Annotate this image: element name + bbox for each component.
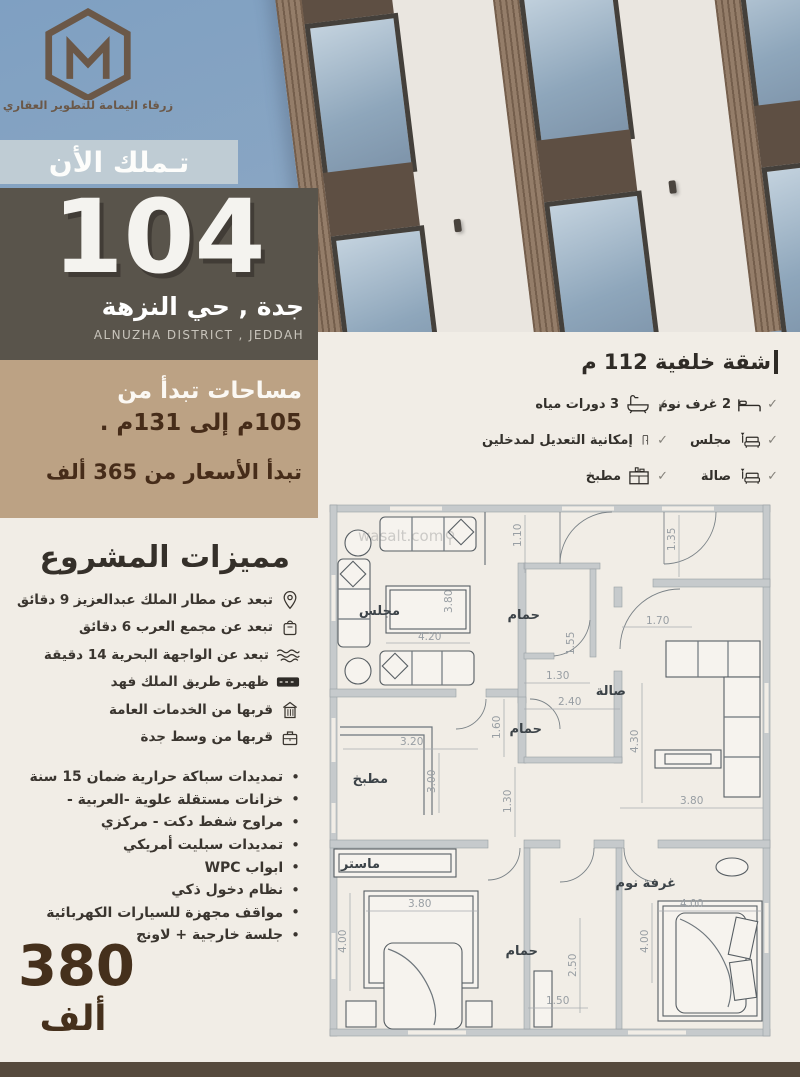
road-icon: [276, 674, 300, 690]
feature-label: تبعد عن مطار الملك عبدالعزيز 9 دقائق: [17, 592, 273, 608]
bullet-label: خزانات مستقلة علوية -العربية -: [67, 792, 283, 808]
bullet-dot: •: [291, 770, 300, 785]
feature-item: قربها من وسط جدة: [4, 724, 300, 752]
dim-value: 3.80: [408, 898, 431, 910]
feature-label: ظهيرة طريق الملك فهد: [111, 674, 269, 690]
areas-line2: 105م إلى 131م .: [100, 410, 302, 436]
check-icon: ✓: [657, 469, 668, 484]
bullet-item: •مراوح شفط دكت - مركزي: [4, 811, 300, 834]
bullet-label: نظام دخول ذكي: [171, 882, 283, 898]
price-unit: ألف: [18, 999, 128, 1039]
dim-value: 3.80: [680, 795, 703, 807]
location-arabic: جدة , حي النزهة: [102, 292, 304, 321]
bullet-item: •نظام دخول ذكي: [4, 879, 300, 902]
check-icon: ✓: [657, 397, 668, 412]
floor-plan: wasalt.com مجلس حمام صالة حمام مطبخ ماست…: [328, 503, 772, 1047]
spec-label: إمكانية التعديل لمدخلين: [482, 433, 633, 448]
building-facade: [268, 0, 800, 332]
waves-icon: [276, 646, 300, 664]
bullet-dot: •: [291, 905, 300, 920]
bullet-label: جلسة خارجية + لاونج: [136, 927, 283, 943]
bullet-item: •مواقف مجهزة للسيارات الكهربائية: [4, 902, 300, 925]
spec-item: ✓ مجلس: [658, 422, 778, 458]
dim-value: 1.30: [502, 790, 514, 813]
bullet-item: •تمديدات سبليت أمريكي: [4, 834, 300, 857]
unit-specs-title-text: شقة خلفية 112 م: [581, 350, 771, 374]
spec-label: 2 غرف نوم: [658, 397, 731, 412]
bullet-label: مواقف مجهزة للسيارات الكهربائية: [46, 905, 283, 921]
dim-value: 3.20: [400, 736, 423, 748]
spec-item: ✓ مطبخ: [482, 458, 668, 494]
feature-label: تبعد عن مجمع العرب 6 دقائق: [79, 619, 273, 635]
project-box: 104 جدة , حي النزهة ALNUZHA DISTRICT , J…: [0, 188, 318, 360]
kitchen-icon: [627, 466, 651, 486]
dim-value: 4.00: [337, 930, 349, 953]
specs-right-column: ✓ 2 غرف نوم ✓ مجلس ✓: [658, 386, 778, 494]
project-number: 104: [0, 184, 318, 291]
feature-item: تبعد عن مجمع العرب 6 دقائق: [4, 614, 300, 642]
own-now-text: تـملك الأن: [49, 146, 189, 179]
dim-value: 1.50: [546, 995, 569, 1007]
room-label-bath-mid: حمام: [510, 722, 543, 737]
bullet-label: تمديدات سباكة حرارية ضمان 15 سنة: [29, 769, 283, 785]
bullet-label: تمديدات سبليت أمريكي: [123, 837, 283, 853]
spec-label: مجلس: [690, 433, 731, 448]
bathtub-icon: [625, 394, 651, 414]
footer-bar: [0, 1062, 800, 1077]
mall-icon: [280, 616, 300, 638]
dim-value: 1.35: [666, 528, 678, 551]
areas-price-box: مساحات تبدأ من 105م إلى 131م . تبدأ الأس…: [0, 360, 318, 518]
room-label-master: ماستر: [340, 857, 380, 872]
features-title: مميزات المشروع: [0, 540, 296, 575]
dim-value: 4.30: [629, 730, 641, 753]
spec-label: صالة: [701, 469, 731, 484]
room-label-bedroom: غرفة نوم: [616, 876, 676, 891]
bullet-dot: •: [291, 792, 300, 807]
bullet-dot: •: [291, 883, 300, 898]
feature-label: قربها من الخدمات العامة: [109, 702, 273, 718]
location-pin-icon: [280, 589, 300, 611]
price-number: 380: [18, 938, 128, 997]
real-estate-flyer: زرقاء اليمامة للتطوير العقاري تـملك الأن…: [0, 0, 800, 1077]
feature-item: قربها من الخدمات العامة: [4, 696, 300, 724]
bed-icon: [737, 395, 761, 413]
dim-value: 1.30: [546, 670, 569, 682]
sofa-icon: [737, 466, 761, 486]
company-name: زرقاء اليمامة للتطوير العقاري: [2, 98, 174, 112]
features-list: تبعد عن مطار الملك عبدالعزيز 9 دقائق تبع…: [4, 586, 300, 751]
bullet-dot: •: [291, 928, 300, 943]
dim-value: 2.50: [567, 954, 579, 977]
spec-item: ✓ 3 دورات مياه: [482, 386, 668, 422]
dim-value: 1.60: [491, 716, 503, 739]
feature-item: تبعد عن الواجهة البحرية 14 دقيقة: [4, 641, 300, 669]
spec-item: ✓ إمكانية التعديل لمدخلين: [482, 422, 668, 458]
location-english: ALNUZHA DISTRICT , JEDDAH: [94, 328, 304, 342]
floor-plan-drawing: wasalt.com مجلس حمام صالة حمام مطبخ ماست…: [328, 503, 772, 1043]
dim-value: 4.20: [418, 631, 441, 643]
areas-line1: مساحات تبدأ من: [117, 378, 302, 404]
bullet-item: •تمديدات سباكة حرارية ضمان 15 سنة: [4, 766, 300, 789]
building-icon: [280, 699, 300, 721]
dim-value: 1.70: [646, 615, 669, 627]
bullet-dot: •: [291, 815, 300, 830]
feature-label: تبعد عن الواجهة البحرية 14 دقيقة: [44, 647, 269, 663]
dim-value: 2.40: [558, 696, 581, 708]
door-icon: [639, 429, 651, 451]
dim-value: 4.00: [680, 898, 703, 910]
check-icon: ✓: [657, 433, 668, 448]
features-bullet-list: •تمديدات سباكة حرارية ضمان 15 سنة •خزانا…: [4, 766, 300, 947]
feature-item: ظهيرة طريق الملك فهد: [4, 669, 300, 697]
dim-value: 1.55: [565, 632, 577, 655]
room-label-majlis: مجلس: [359, 604, 400, 619]
check-icon: ✓: [767, 433, 778, 448]
room-label-bath-top: حمام: [508, 608, 541, 623]
feature-item: تبعد عن مطار الملك عبدالعزيز 9 دقائق: [4, 586, 300, 614]
spec-item: ✓ صالة: [658, 458, 778, 494]
dim-value: 4.00: [639, 930, 651, 953]
bullet-dot: •: [291, 838, 300, 853]
company-logo: [40, 8, 136, 100]
check-icon: ✓: [767, 469, 778, 484]
bullet-item: •خزانات مستقلة علوية -العربية -: [4, 789, 300, 812]
bullet-label: مراوح شفط دكت - مركزي: [101, 814, 283, 830]
bullet-dot: •: [291, 860, 300, 875]
bullet-label: ابواب WPC: [205, 860, 284, 876]
unit-specs-title: شقة خلفية 112 م: [581, 350, 778, 374]
specs-left-column: ✓ 3 دورات مياه ✓ إمكانية التعديل لمدخلين…: [482, 386, 668, 494]
price-badge: 380 ألف: [18, 938, 128, 1039]
room-label-bath-bottom: حمام: [506, 944, 539, 959]
feature-label: قربها من وسط جدة: [140, 729, 273, 745]
room-label-hall: صالة: [596, 684, 626, 699]
title-bar: [774, 350, 778, 374]
spec-item: ✓ 2 غرف نوم: [658, 386, 778, 422]
dim-value: 3.00: [426, 770, 438, 793]
sofa-icon: [737, 430, 761, 450]
spec-label: مطبخ: [586, 469, 621, 484]
room-label-kitchen: مطبخ: [353, 772, 388, 787]
watermark: wasalt.com: [358, 527, 443, 545]
hexagon-m-logo-icon: [40, 8, 136, 100]
city-icon: [280, 726, 300, 748]
bullet-item: •ابواب WPC: [4, 856, 300, 879]
dim-value: 1.10: [512, 524, 524, 547]
check-icon: ✓: [767, 397, 778, 412]
starting-price: تبدأ الأسعار من 365 ألف: [46, 460, 302, 484]
spec-label: 3 دورات مياه: [535, 397, 619, 412]
dim-value: 3.80: [443, 590, 455, 613]
